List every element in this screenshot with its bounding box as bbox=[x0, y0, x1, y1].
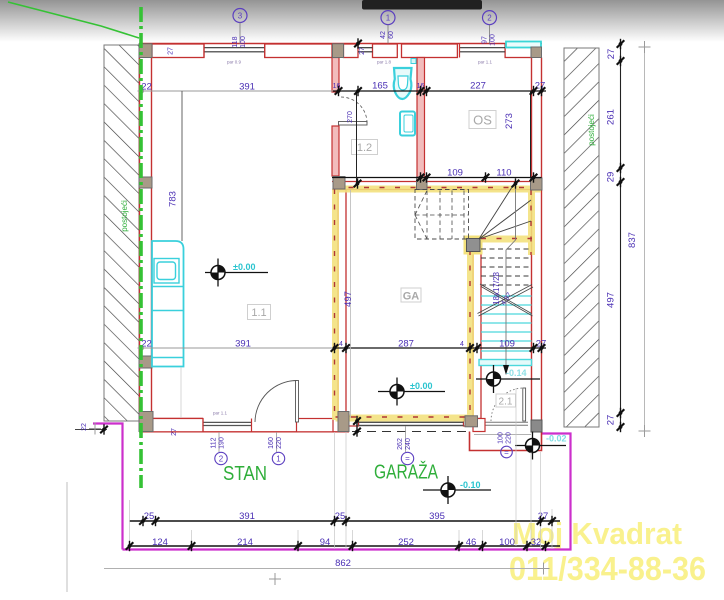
svg-text:32: 32 bbox=[531, 537, 542, 548]
svg-text:25: 25 bbox=[144, 511, 155, 522]
svg-text:262: 262 bbox=[397, 438, 404, 450]
svg-text:-0.10: -0.10 bbox=[460, 480, 481, 490]
svg-text:100: 100 bbox=[490, 34, 497, 46]
svg-text:227: 227 bbox=[470, 81, 486, 92]
svg-text:109: 109 bbox=[499, 339, 515, 350]
svg-text:OS: OS bbox=[473, 113, 492, 128]
svg-text:391: 391 bbox=[239, 82, 255, 93]
svg-text:118: 118 bbox=[232, 36, 239, 47]
svg-text:27: 27 bbox=[168, 47, 175, 55]
svg-text:22: 22 bbox=[81, 423, 88, 431]
svg-text:=: = bbox=[405, 454, 410, 463]
svg-text:par 1.1: par 1.1 bbox=[478, 60, 493, 65]
svg-text:160: 160 bbox=[268, 437, 275, 449]
svg-text:270: 270 bbox=[347, 111, 354, 123]
svg-text:214: 214 bbox=[237, 537, 253, 548]
svg-text:165: 165 bbox=[372, 81, 388, 92]
svg-text:862: 862 bbox=[335, 558, 351, 569]
svg-text:par 1.1: par 1.1 bbox=[213, 411, 228, 416]
svg-text:395: 395 bbox=[429, 511, 445, 522]
svg-text:27: 27 bbox=[171, 428, 178, 436]
svg-text:1.2: 1.2 bbox=[357, 142, 372, 154]
svg-text:497: 497 bbox=[343, 291, 354, 307]
svg-text:94: 94 bbox=[320, 537, 331, 548]
svg-text:4: 4 bbox=[460, 341, 464, 348]
svg-text:100: 100 bbox=[240, 36, 247, 48]
svg-text:220: 220 bbox=[276, 437, 283, 449]
svg-text:par 0.9: par 0.9 bbox=[227, 60, 242, 65]
svg-text:27: 27 bbox=[359, 47, 366, 55]
svg-text:1.1: 1.1 bbox=[251, 307, 266, 319]
svg-text:par 1.8: par 1.8 bbox=[377, 60, 392, 65]
svg-text:1: 1 bbox=[276, 455, 281, 464]
svg-text:4: 4 bbox=[339, 341, 343, 348]
svg-text:252: 252 bbox=[398, 537, 414, 548]
svg-text:124: 124 bbox=[152, 537, 168, 548]
svg-text:STAN: STAN bbox=[223, 462, 267, 485]
svg-text:=: = bbox=[504, 448, 509, 457]
svg-text:29: 29 bbox=[606, 172, 617, 183]
svg-text:-0.02: -0.02 bbox=[546, 434, 567, 444]
svg-text:postojeći: postojeći bbox=[587, 114, 596, 146]
svg-text:100: 100 bbox=[498, 432, 505, 444]
svg-text:±0.00: ±0.00 bbox=[410, 381, 432, 391]
svg-text:27: 27 bbox=[606, 415, 617, 426]
svg-text:42: 42 bbox=[380, 31, 387, 39]
svg-text:2: 2 bbox=[219, 455, 224, 464]
svg-text:GARAŽA: GARAŽA bbox=[374, 461, 438, 484]
svg-text:postojeći: postojeći bbox=[120, 200, 129, 232]
svg-text:18x17/28: 18x17/28 bbox=[492, 271, 501, 304]
svg-text:97: 97 bbox=[482, 36, 489, 44]
svg-text:190: 190 bbox=[219, 437, 226, 449]
svg-text:-0.14: -0.14 bbox=[506, 368, 527, 378]
svg-text:±0.00: ±0.00 bbox=[233, 262, 255, 272]
svg-text:109: 109 bbox=[447, 168, 463, 179]
svg-text:2.1: 2.1 bbox=[499, 397, 513, 408]
svg-text:220: 220 bbox=[506, 432, 513, 444]
svg-text:2: 2 bbox=[487, 14, 492, 23]
svg-text:112: 112 bbox=[211, 437, 218, 448]
svg-text:261: 261 bbox=[606, 109, 617, 125]
svg-text:100: 100 bbox=[499, 537, 515, 548]
svg-text:GA: GA bbox=[403, 291, 420, 303]
svg-text:240: 240 bbox=[405, 438, 412, 450]
svg-text:46: 46 bbox=[466, 537, 477, 548]
svg-text:391: 391 bbox=[235, 339, 251, 350]
svg-text:1: 1 bbox=[386, 14, 391, 23]
svg-text:391: 391 bbox=[239, 511, 255, 522]
svg-text:837: 837 bbox=[627, 232, 638, 248]
svg-text:110: 110 bbox=[496, 168, 511, 179]
svg-text:273: 273 bbox=[504, 113, 515, 129]
svg-text:497: 497 bbox=[606, 292, 617, 308]
svg-text:60: 60 bbox=[388, 31, 395, 39]
svg-text:783: 783 bbox=[168, 191, 179, 207]
svg-text:3: 3 bbox=[238, 12, 243, 21]
svg-text:287: 287 bbox=[398, 339, 414, 350]
svg-text:27: 27 bbox=[606, 49, 617, 60]
